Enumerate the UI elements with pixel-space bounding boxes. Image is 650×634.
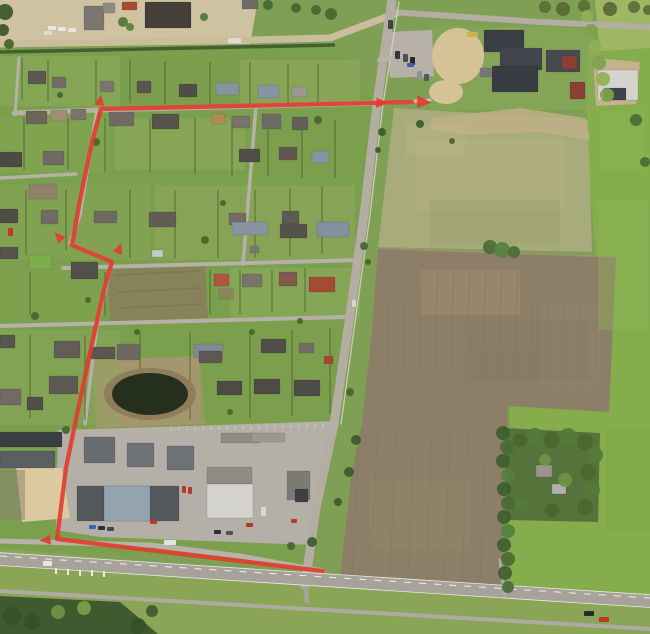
tree (416, 120, 424, 128)
tree (104, 610, 120, 626)
building (242, 0, 258, 9)
building (242, 274, 262, 287)
tree (577, 499, 593, 515)
vehicle (107, 527, 114, 531)
tree (628, 1, 640, 13)
building (117, 344, 140, 360)
building (232, 222, 268, 235)
tree (544, 432, 560, 448)
building (104, 486, 150, 521)
tree (497, 538, 511, 552)
building (43, 151, 64, 165)
building (152, 114, 179, 129)
tree (287, 542, 295, 550)
vehicle (214, 530, 221, 534)
building (282, 211, 299, 224)
tree (508, 246, 520, 258)
building (103, 3, 115, 13)
tree (449, 138, 455, 144)
terrain-patch (115, 118, 245, 170)
terrain-patch (598, 200, 648, 330)
building (122, 2, 137, 10)
building (0, 247, 18, 259)
building (0, 152, 22, 167)
vehicle (407, 63, 414, 67)
vehicle (424, 74, 429, 81)
tree (501, 468, 515, 482)
vehicle (388, 20, 393, 29)
tree (346, 388, 354, 396)
vehicle (261, 507, 266, 516)
tree (600, 88, 614, 102)
building (90, 347, 115, 359)
tree (307, 537, 317, 547)
building (492, 66, 538, 92)
building (261, 339, 286, 353)
building (71, 262, 98, 279)
tree (515, 498, 529, 512)
building (214, 274, 229, 286)
building (562, 56, 577, 69)
tree (51, 605, 65, 619)
tree (588, 40, 602, 54)
tree (297, 318, 303, 324)
tree (502, 581, 514, 593)
building (262, 114, 281, 129)
tree (3, 607, 21, 625)
building (309, 277, 335, 292)
tree (587, 447, 603, 463)
tree (130, 618, 146, 634)
tree (577, 434, 593, 450)
tree (527, 428, 543, 444)
vehicle (395, 51, 400, 59)
tree (201, 236, 209, 244)
building (279, 272, 297, 286)
building (94, 211, 117, 223)
building (199, 351, 222, 363)
building (570, 82, 585, 99)
tree (249, 329, 255, 335)
vehicle (246, 523, 253, 527)
building (258, 85, 279, 98)
vehicle (403, 54, 408, 62)
tree (365, 259, 371, 265)
building (207, 484, 253, 518)
building (0, 209, 18, 223)
building (217, 381, 242, 395)
tree (558, 473, 572, 487)
building (28, 71, 46, 84)
tree (496, 454, 510, 468)
building (52, 77, 66, 88)
building (100, 81, 114, 92)
terrain-patch (240, 60, 360, 105)
building (29, 184, 57, 199)
building (212, 114, 225, 124)
building (109, 112, 134, 126)
school-sandbox-2 (429, 80, 463, 104)
building (0, 335, 15, 348)
terrain-patch (430, 200, 560, 245)
tree (126, 23, 134, 31)
tree (584, 24, 598, 38)
tree (31, 312, 39, 320)
building (29, 255, 52, 269)
building (207, 467, 252, 484)
vehicle (599, 617, 609, 622)
tree (498, 566, 512, 580)
tree (497, 510, 511, 524)
building (27, 397, 43, 410)
vehicle (226, 531, 233, 535)
tree (263, 0, 273, 10)
tree (513, 433, 527, 447)
building (294, 380, 320, 396)
tree (4, 39, 14, 49)
building (252, 433, 285, 442)
building (127, 443, 154, 467)
tree (57, 92, 63, 98)
building (54, 341, 80, 358)
tree (556, 2, 570, 16)
building (292, 87, 307, 97)
terrain-patch (405, 125, 465, 155)
vehicle (417, 71, 422, 79)
building (179, 84, 197, 97)
tree (378, 128, 386, 136)
terrain-patch (370, 480, 470, 550)
building (51, 110, 67, 121)
building (216, 83, 239, 95)
building (0, 389, 21, 405)
building (295, 489, 308, 502)
pond (112, 373, 188, 415)
tree (62, 426, 70, 434)
building (84, 6, 104, 30)
vehicle (291, 519, 297, 523)
vehicle (68, 28, 76, 32)
building (232, 116, 250, 128)
tree (584, 482, 600, 498)
tree (630, 114, 642, 126)
building (152, 250, 163, 257)
tree (291, 3, 301, 13)
building (84, 437, 115, 463)
vehicle (188, 487, 192, 494)
building (167, 446, 194, 470)
tree (85, 297, 91, 303)
tree (325, 8, 337, 20)
tree (596, 72, 610, 86)
building (317, 222, 349, 237)
tree (134, 329, 140, 335)
building (292, 117, 308, 130)
tree (501, 496, 515, 510)
tree (314, 116, 322, 124)
terrain-patch (606, 430, 650, 530)
vehicle (182, 486, 186, 493)
tree (497, 482, 511, 496)
vehicle (58, 27, 66, 31)
tree (227, 409, 233, 415)
building (71, 109, 86, 120)
vehicle (150, 520, 157, 524)
tree (580, 464, 596, 480)
vehicle (467, 32, 478, 37)
tree (220, 200, 226, 206)
building (239, 149, 260, 162)
vehicle (43, 561, 52, 566)
vehicle (89, 525, 96, 529)
building (0, 432, 62, 447)
tree (592, 56, 606, 70)
tree (545, 503, 559, 517)
tree (494, 242, 510, 258)
aerial-photo-map (0, 0, 650, 634)
vehicle (352, 300, 356, 307)
tree (581, 10, 593, 22)
building (536, 465, 552, 477)
satellite-image-with-route-overlay (0, 0, 650, 634)
tree (375, 147, 381, 153)
vehicle (228, 38, 241, 43)
building (0, 451, 55, 468)
building (137, 81, 151, 93)
vehicle (584, 611, 594, 616)
tree (501, 552, 515, 566)
terrain-patch (0, 470, 25, 520)
building (312, 151, 329, 163)
building (49, 376, 78, 394)
tree (539, 454, 551, 466)
vehicle (8, 228, 13, 236)
tree (603, 2, 617, 16)
vehicle (164, 540, 176, 545)
tree (344, 467, 354, 477)
building (299, 343, 314, 353)
tree (200, 13, 208, 21)
building (41, 210, 58, 224)
tree (500, 440, 514, 454)
tree (24, 614, 40, 630)
tree (334, 498, 342, 506)
vehicle (44, 31, 52, 35)
building (149, 212, 176, 227)
building (145, 2, 191, 28)
building (480, 68, 491, 77)
tree (640, 157, 650, 167)
tree (539, 1, 551, 13)
tree (360, 242, 368, 250)
terrain-patch (218, 288, 234, 300)
vehicle (48, 26, 56, 30)
tree (559, 428, 577, 446)
building (254, 379, 280, 394)
building (280, 224, 307, 238)
building (279, 147, 297, 160)
building (26, 111, 47, 124)
tree (146, 605, 158, 617)
tree (77, 601, 91, 615)
tree (501, 524, 515, 538)
tree (351, 435, 361, 445)
building (250, 246, 259, 253)
tree (311, 5, 321, 15)
tree (496, 426, 510, 440)
vehicle (98, 526, 105, 530)
building (324, 356, 333, 364)
